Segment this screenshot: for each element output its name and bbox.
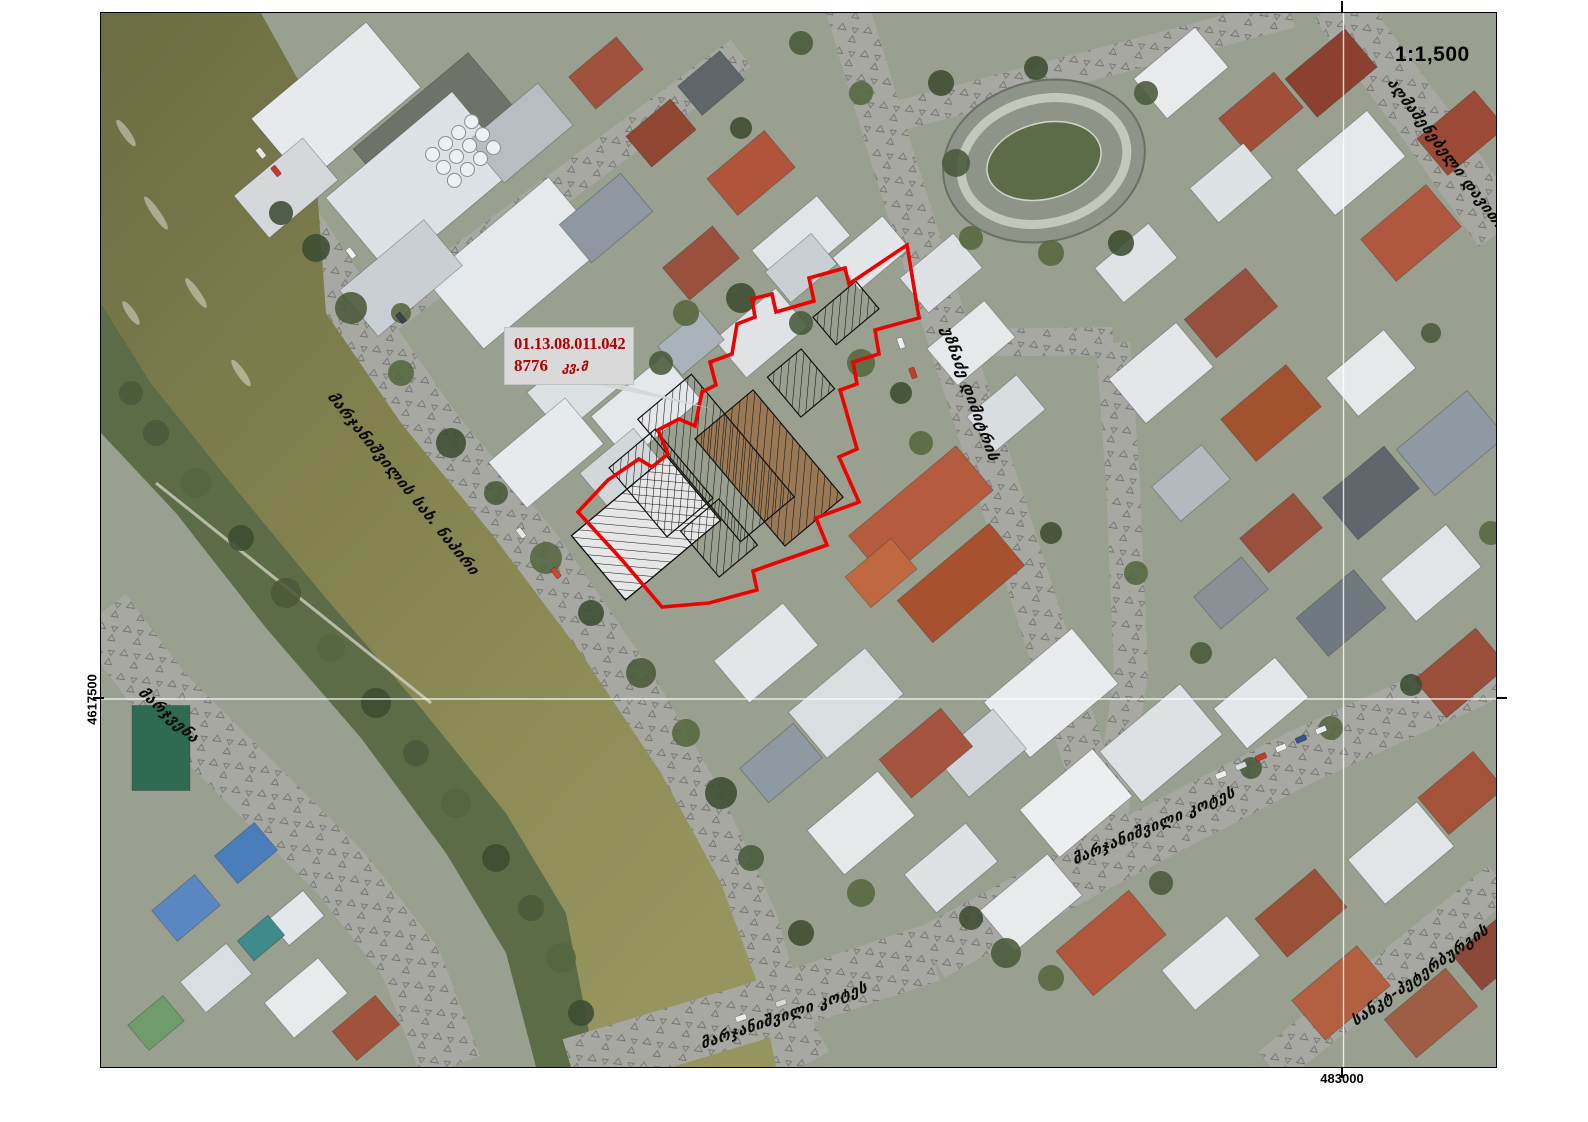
satellite-imagery [101,13,1496,1067]
parcel-callout[interactable]: 01.13.08.011.042 8776კვ.მ [504,327,634,385]
parcel-code: 01.13.08.011.042 [514,334,626,354]
map-sheet: მარჯანიშვილის სახ. ნაპირი მარჯვენა უზნაძ… [0,0,1588,1122]
grid-tick-top [1341,1,1343,12]
parcel-area-unit: კვ.მ [562,359,588,374]
northing-coordinate: 4617500 [85,664,100,736]
grid-tick-right [1496,697,1507,699]
parcel-area: 8776კვ.მ [514,356,626,376]
scale-label: 1:1,500 [1395,43,1470,67]
grid-tick-left [93,697,104,699]
grid-tick-bottom [1341,1067,1343,1078]
orthophoto-map[interactable]: მარჯანიშვილის სახ. ნაპირი მარჯვენა უზნაძ… [100,12,1497,1068]
